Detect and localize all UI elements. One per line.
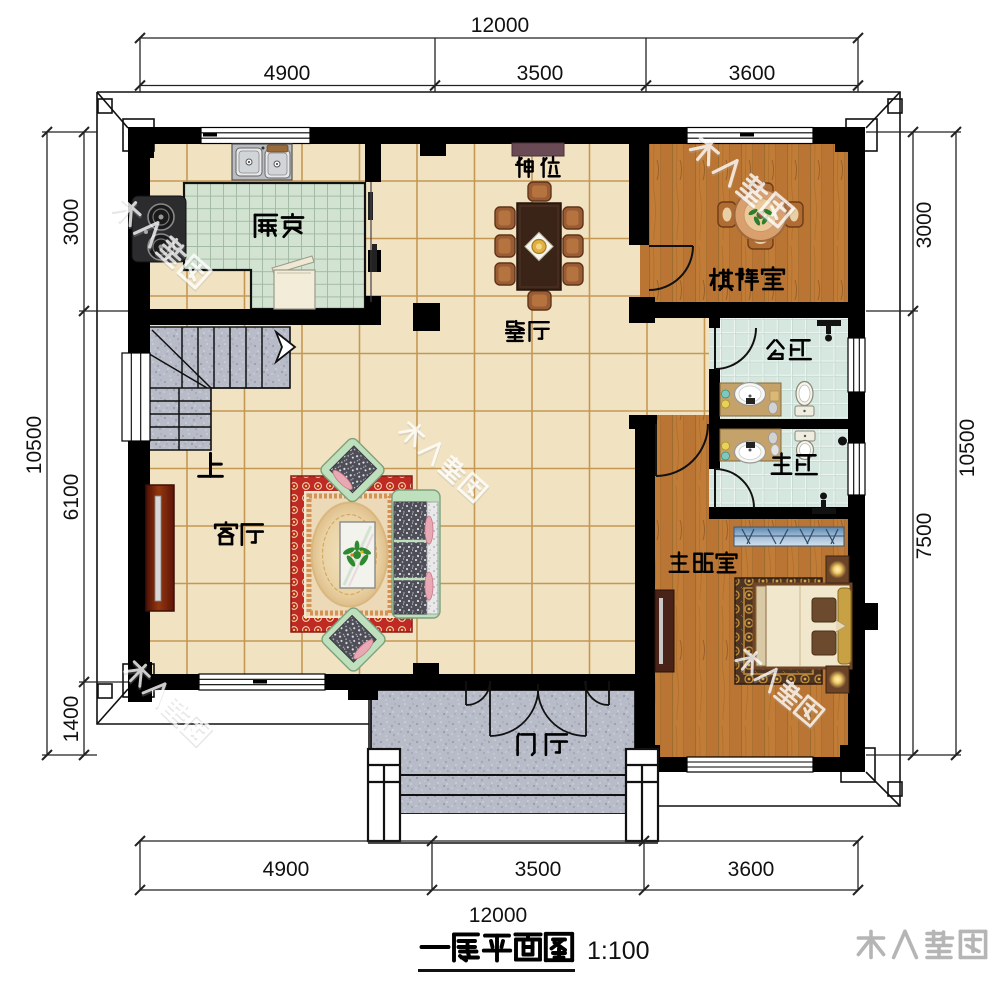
svg-text:6100: 6100 <box>60 474 83 521</box>
svg-text:10500: 10500 <box>956 419 979 477</box>
svg-text:3000: 3000 <box>60 199 83 246</box>
svg-text:3500: 3500 <box>515 858 562 881</box>
svg-text:12000: 12000 <box>471 14 529 37</box>
svg-text:7500: 7500 <box>913 513 936 560</box>
svg-text:12000: 12000 <box>469 904 527 927</box>
svg-text:4900: 4900 <box>263 858 310 881</box>
svg-text:3000: 3000 <box>913 202 936 249</box>
svg-text:3600: 3600 <box>729 62 776 85</box>
svg-text:1400: 1400 <box>60 696 83 743</box>
svg-text:3500: 3500 <box>517 62 564 85</box>
svg-text:1:100: 1:100 <box>587 937 650 965</box>
svg-text:3600: 3600 <box>728 858 775 881</box>
svg-text:4900: 4900 <box>264 62 311 85</box>
svg-text:10500: 10500 <box>23 416 46 474</box>
